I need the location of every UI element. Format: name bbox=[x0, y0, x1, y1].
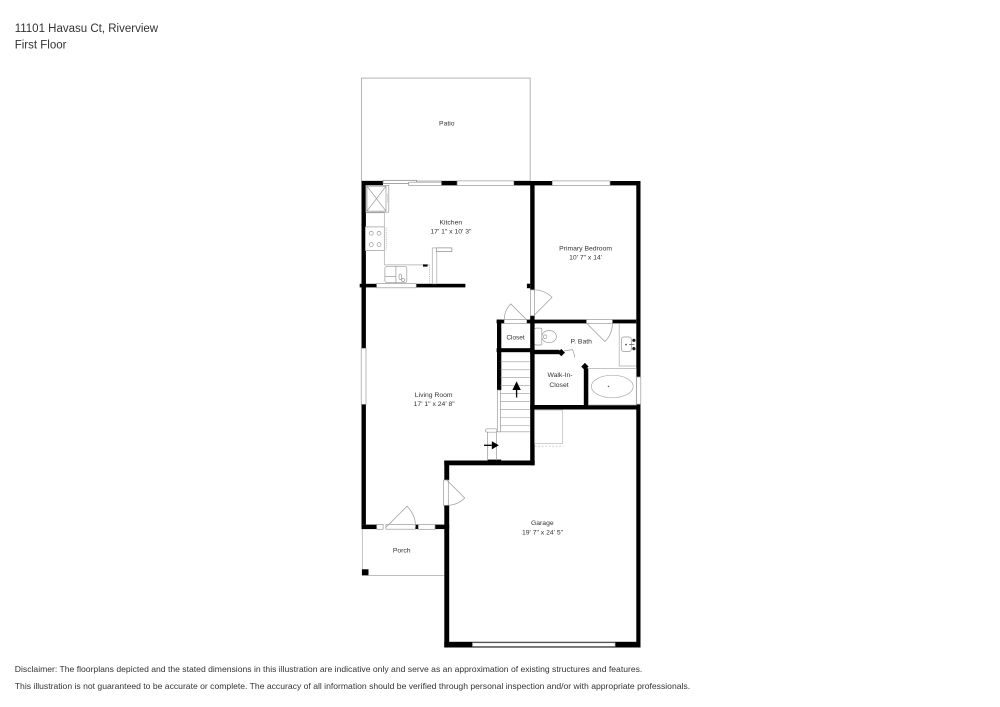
svg-text:17' 1" x 24' 8": 17' 1" x 24' 8" bbox=[414, 401, 456, 408]
svg-text:10' 7" x 14': 10' 7" x 14' bbox=[569, 255, 602, 262]
svg-text:Living Room: Living Room bbox=[415, 392, 453, 399]
svg-text:Closet: Closet bbox=[506, 335, 524, 342]
svg-text:19' 7" x 24' 5": 19' 7" x 24' 5" bbox=[522, 529, 564, 536]
svg-text:First Floor: First Floor bbox=[15, 39, 67, 51]
svg-text:Primary Bedroom: Primary Bedroom bbox=[559, 246, 612, 253]
svg-text:Kitchen: Kitchen bbox=[439, 219, 462, 226]
svg-text:Disclaimer: The floorplans dep: Disclaimer: The floorplans depicted and … bbox=[15, 664, 643, 674]
svg-text:Patio: Patio bbox=[439, 120, 455, 127]
svg-text:Walk-In-: Walk-In- bbox=[547, 372, 572, 379]
svg-text:Porch: Porch bbox=[393, 548, 411, 555]
svg-text:Garage: Garage bbox=[531, 520, 554, 527]
svg-text:11101 Havasu Ct, Riverview: 11101 Havasu Ct, Riverview bbox=[15, 23, 159, 35]
svg-text:Closet: Closet bbox=[549, 382, 568, 389]
svg-text:P. Bath: P. Bath bbox=[570, 338, 592, 345]
svg-text:This illustration is not guara: This illustration is not guaranteed to b… bbox=[15, 681, 690, 691]
svg-text:17' 1" x 10' 3": 17' 1" x 10' 3" bbox=[430, 229, 472, 236]
